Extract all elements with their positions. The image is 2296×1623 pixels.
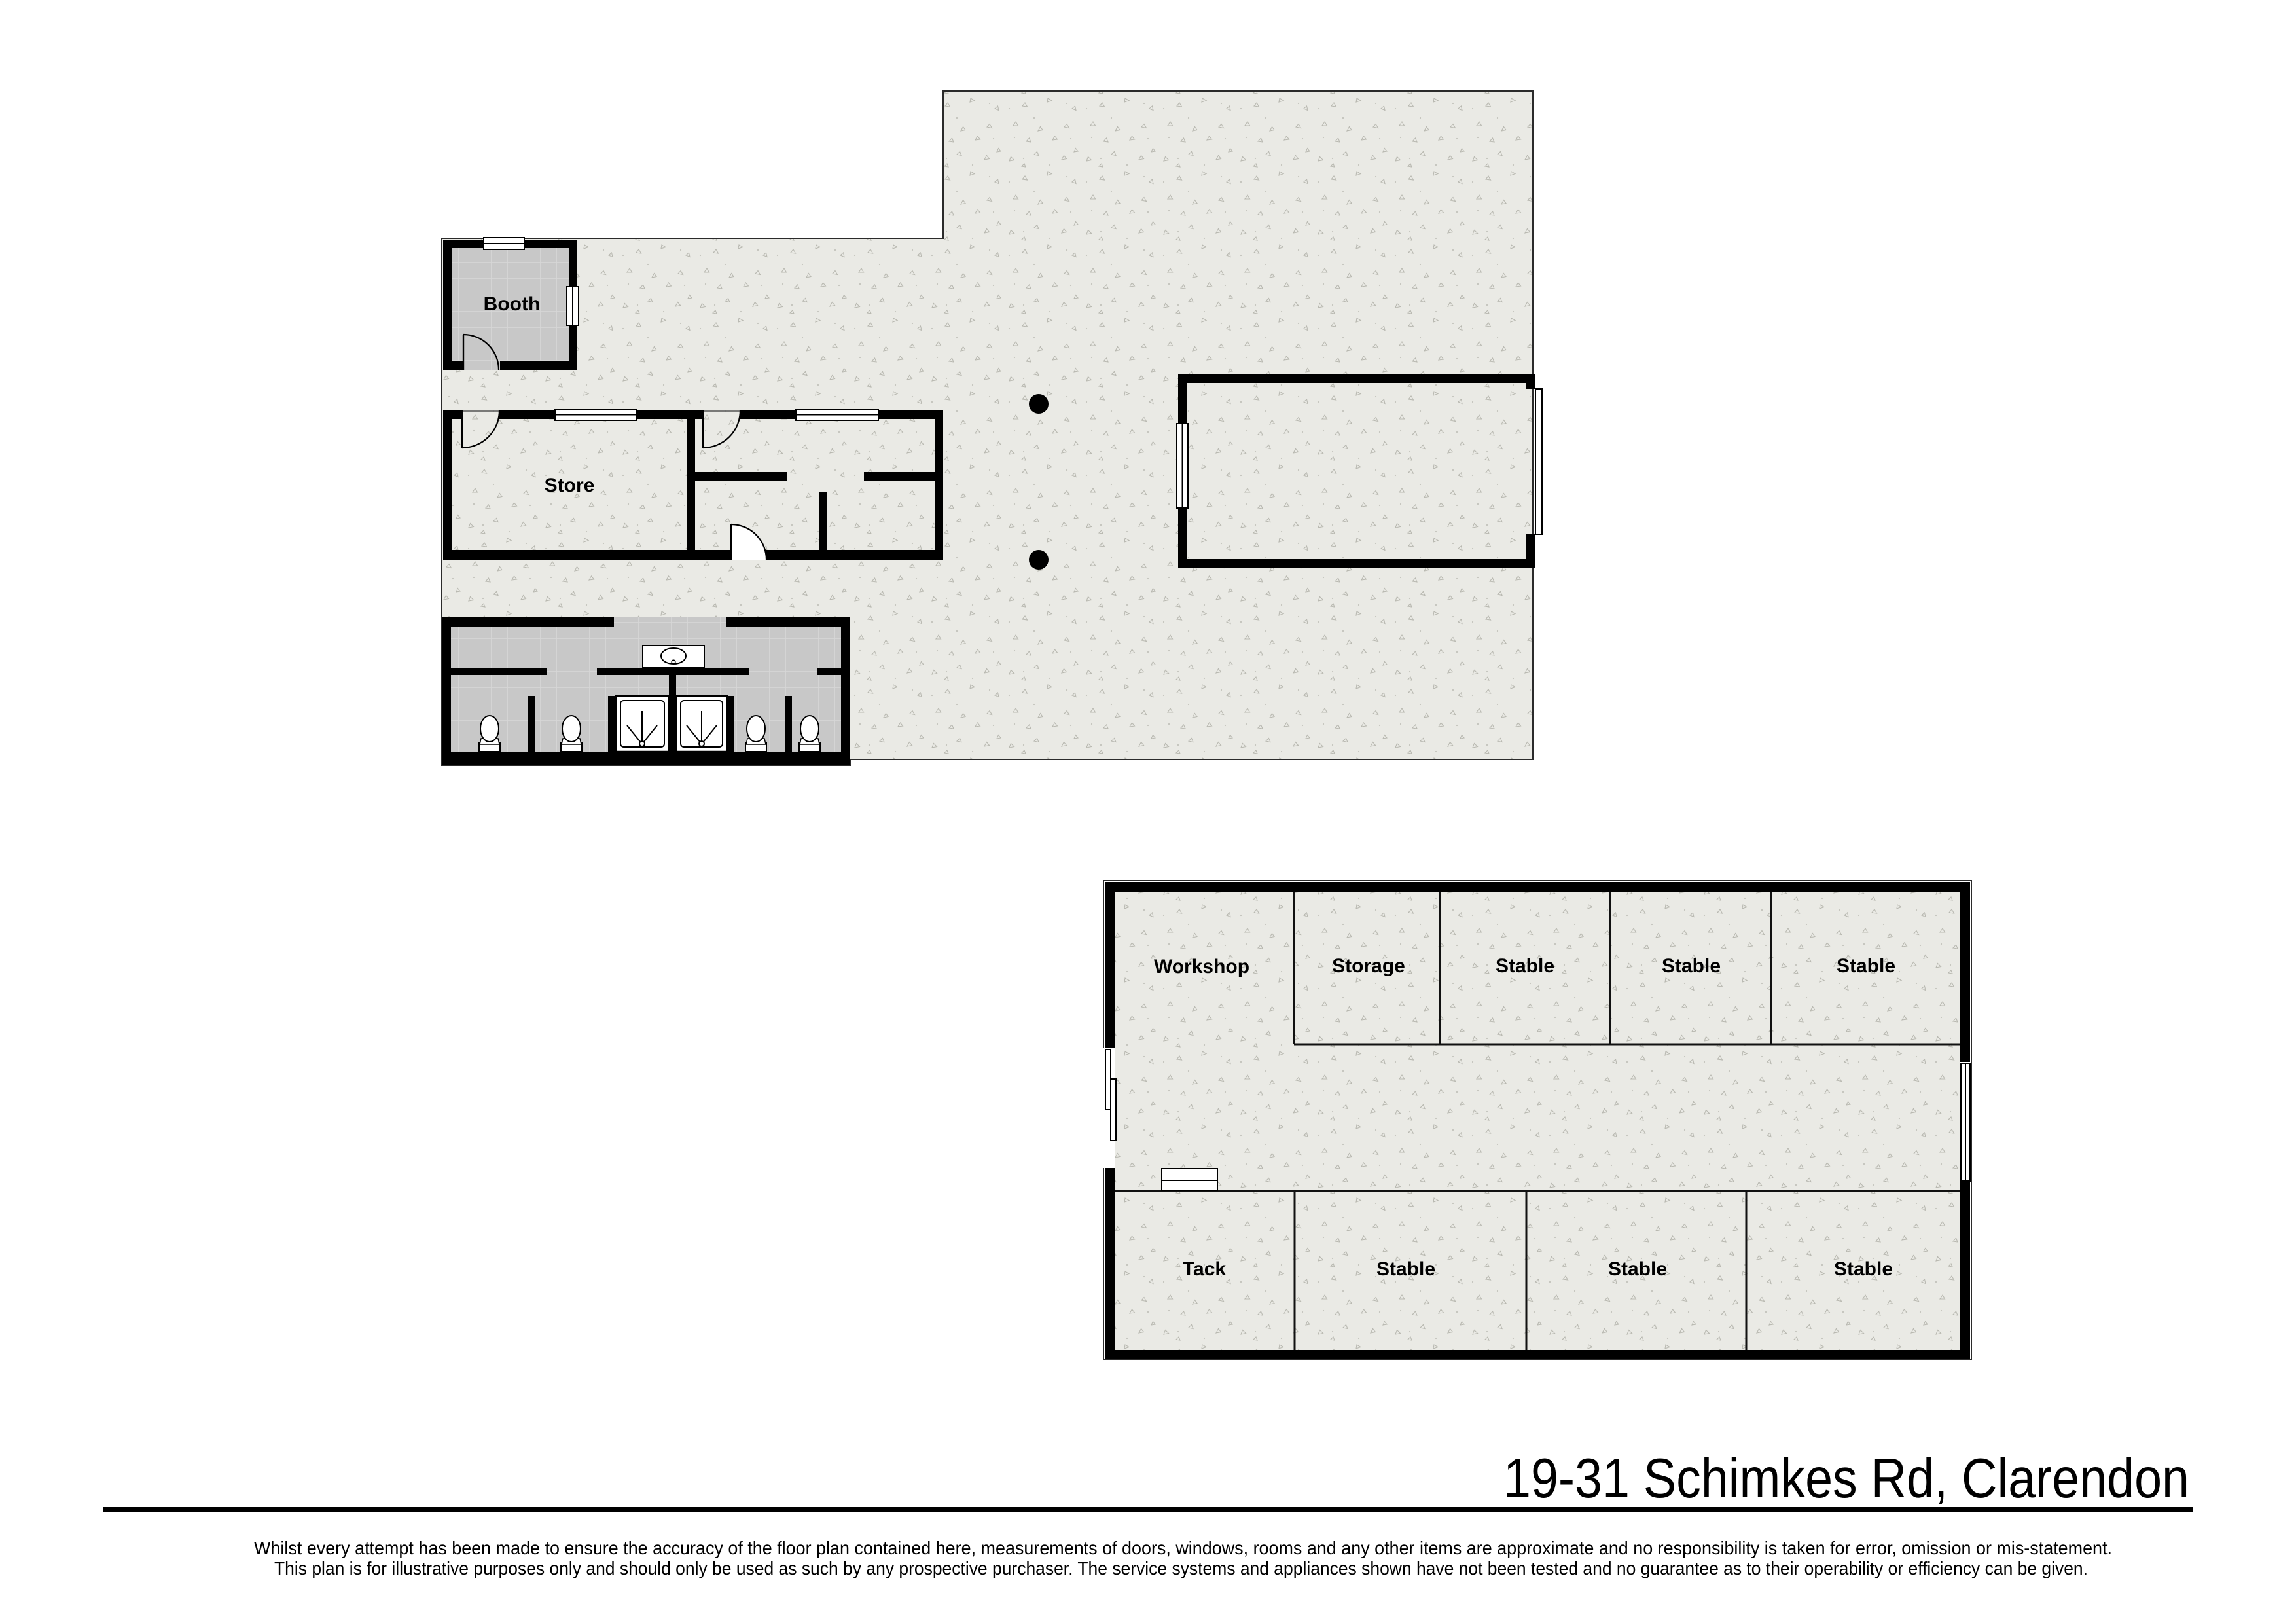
svg-text:Stable: Stable [1662,955,1721,977]
svg-text:Whilst every attempt has been: Whilst every attempt has been made to en… [254,1538,2112,1558]
svg-text:Stable: Stable [1837,955,1895,977]
svg-text:19-31 Schimkes Rd, Clarendon: 19-31 Schimkes Rd, Clarendon [1503,1448,2189,1510]
svg-text:Storage: Storage [1332,955,1405,977]
svg-text:Booth: Booth [484,293,541,315]
svg-text:Stable: Stable [1608,1258,1667,1280]
svg-text:Tack: Tack [1183,1258,1226,1280]
svg-text:Workshop: Workshop [1154,956,1249,977]
svg-text:Stable: Stable [1496,955,1554,977]
svg-text:Stable: Stable [1834,1258,1893,1280]
svg-text:Stable: Stable [1376,1258,1435,1280]
svg-text:Store: Store [545,475,595,496]
svg-text:This plan is for illustrative: This plan is for illustrative purposes o… [274,1558,2088,1578]
